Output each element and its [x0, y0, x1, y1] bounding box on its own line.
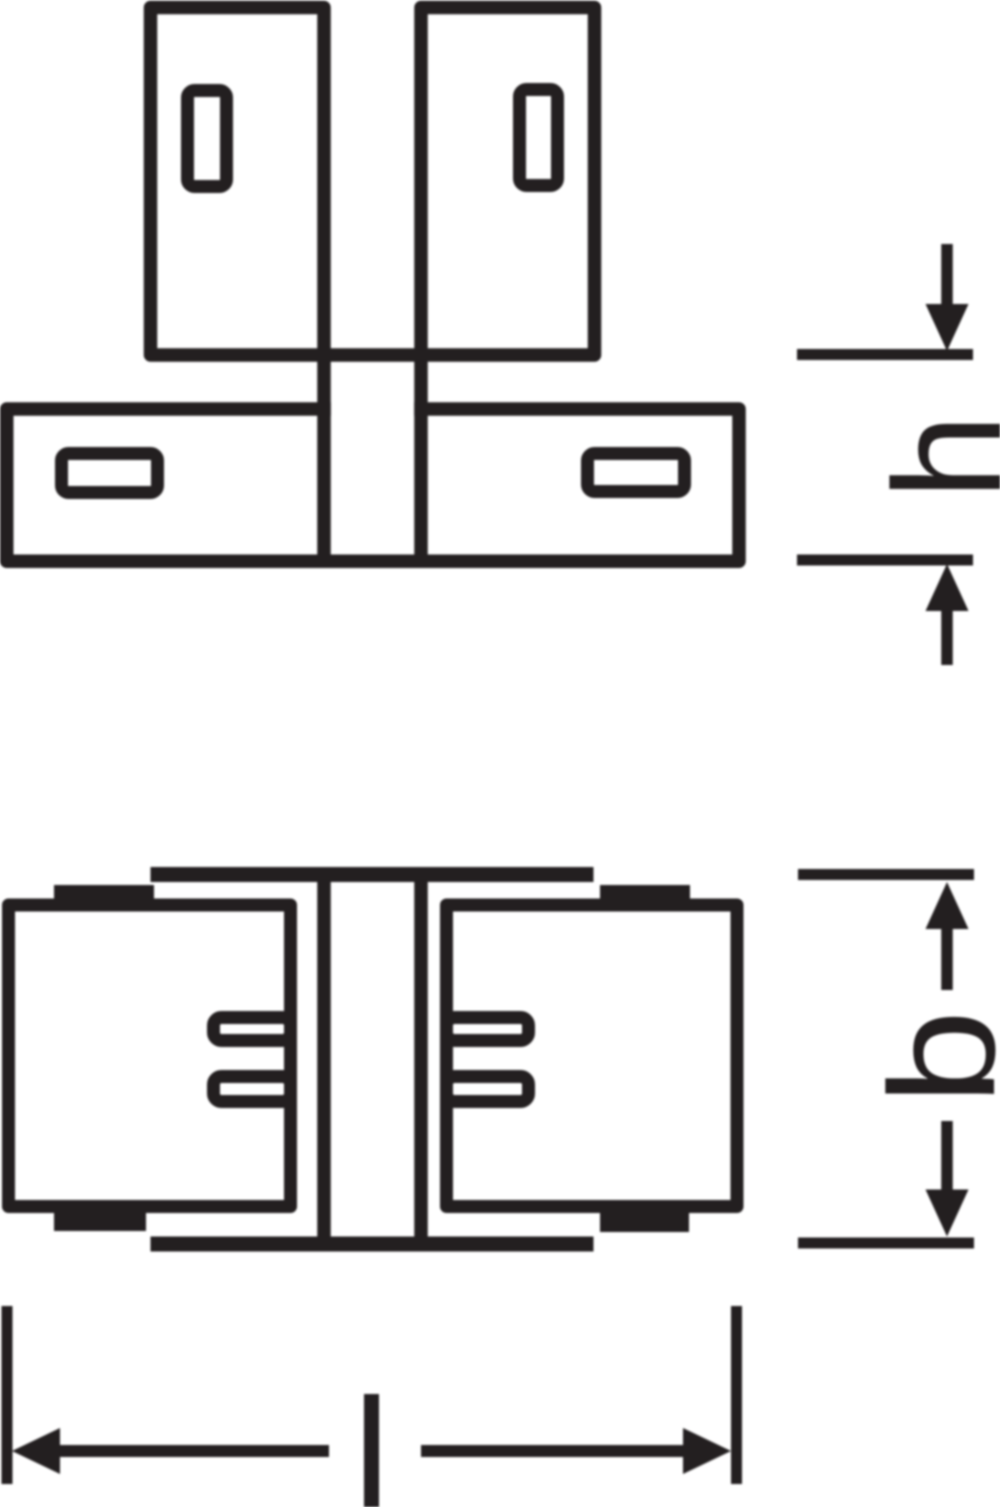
svg-text:h: h	[862, 414, 1000, 500]
svg-text:b: b	[859, 1010, 1000, 1105]
